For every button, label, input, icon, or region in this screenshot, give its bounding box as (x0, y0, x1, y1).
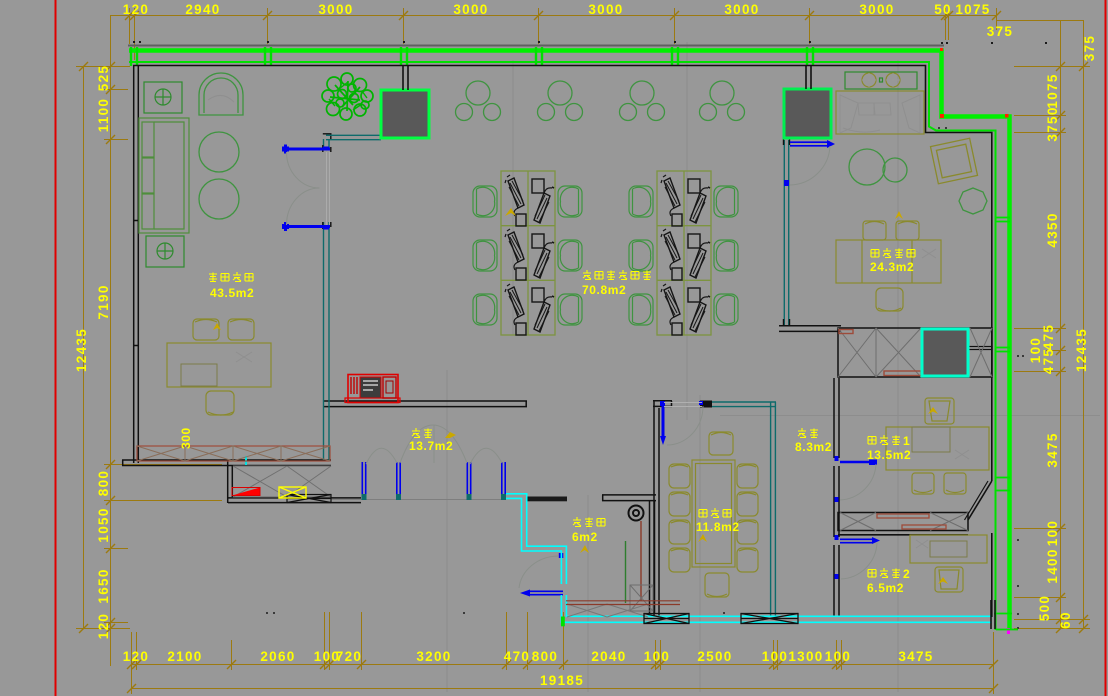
svg-text:100: 100 (762, 649, 788, 664)
svg-text:300: 300 (179, 427, 193, 449)
svg-text:2: 2 (903, 567, 910, 581)
svg-text:13.7m2: 13.7m2 (409, 439, 453, 453)
svg-text:1: 1 (903, 434, 910, 448)
svg-text:800: 800 (532, 649, 558, 664)
svg-text:3475: 3475 (1045, 432, 1060, 467)
svg-text:19185: 19185 (540, 673, 584, 688)
svg-text:12435: 12435 (74, 328, 89, 372)
svg-text:3000: 3000 (859, 2, 894, 17)
svg-text:6m2: 6m2 (572, 530, 598, 544)
svg-text:13.5m2: 13.5m2 (867, 448, 911, 462)
svg-text:3000: 3000 (724, 2, 759, 17)
svg-text:100: 100 (644, 649, 670, 664)
svg-text:720: 720 (336, 649, 362, 664)
svg-text:475: 475 (1041, 348, 1056, 374)
svg-text:7190: 7190 (96, 284, 111, 319)
svg-text:12435: 12435 (1074, 328, 1089, 372)
svg-text:1050: 1050 (96, 507, 111, 542)
svg-text:50: 50 (934, 2, 952, 17)
svg-text:3475: 3475 (898, 649, 933, 664)
svg-text:100: 100 (1028, 337, 1043, 363)
svg-text:70.8m2: 70.8m2 (582, 283, 626, 297)
svg-text:800: 800 (96, 470, 111, 496)
svg-text:120: 120 (96, 613, 111, 639)
svg-text:1075: 1075 (1045, 73, 1060, 108)
svg-text:475: 475 (1041, 324, 1056, 350)
svg-text:2500: 2500 (697, 649, 732, 664)
svg-text:3000: 3000 (453, 2, 488, 17)
svg-text:1650: 1650 (96, 568, 111, 603)
svg-text:375: 375 (1082, 35, 1097, 61)
svg-text:1075: 1075 (955, 2, 990, 17)
svg-text:2060: 2060 (260, 649, 295, 664)
svg-text:8.3m2: 8.3m2 (795, 440, 832, 454)
svg-text:120: 120 (123, 649, 149, 664)
svg-text:525: 525 (96, 65, 111, 91)
svg-text:24.3m2: 24.3m2 (870, 260, 914, 274)
svg-text:500: 500 (1037, 595, 1052, 621)
svg-text:11.8m2: 11.8m2 (696, 520, 740, 534)
svg-text:120: 120 (123, 2, 149, 17)
svg-text:2040: 2040 (591, 649, 626, 664)
svg-text:6.5m2: 6.5m2 (867, 581, 904, 595)
svg-text:2100: 2100 (167, 649, 202, 664)
svg-text:470: 470 (504, 649, 530, 664)
svg-text:100: 100 (825, 649, 851, 664)
svg-text:3000: 3000 (318, 2, 353, 17)
svg-text:3000: 3000 (588, 2, 623, 17)
svg-text:375: 375 (987, 24, 1013, 39)
svg-text:60: 60 (1058, 611, 1073, 629)
svg-text:3750: 3750 (1045, 106, 1060, 141)
svg-text:43.5m2: 43.5m2 (210, 286, 254, 300)
svg-text:2940: 2940 (185, 2, 220, 17)
svg-text:1400: 1400 (1045, 548, 1060, 583)
svg-text:3200: 3200 (416, 649, 451, 664)
svg-text:100: 100 (1045, 520, 1060, 546)
svg-text:1100: 1100 (96, 98, 111, 133)
svg-text:4350: 4350 (1045, 212, 1060, 247)
svg-text:1300: 1300 (788, 649, 823, 664)
